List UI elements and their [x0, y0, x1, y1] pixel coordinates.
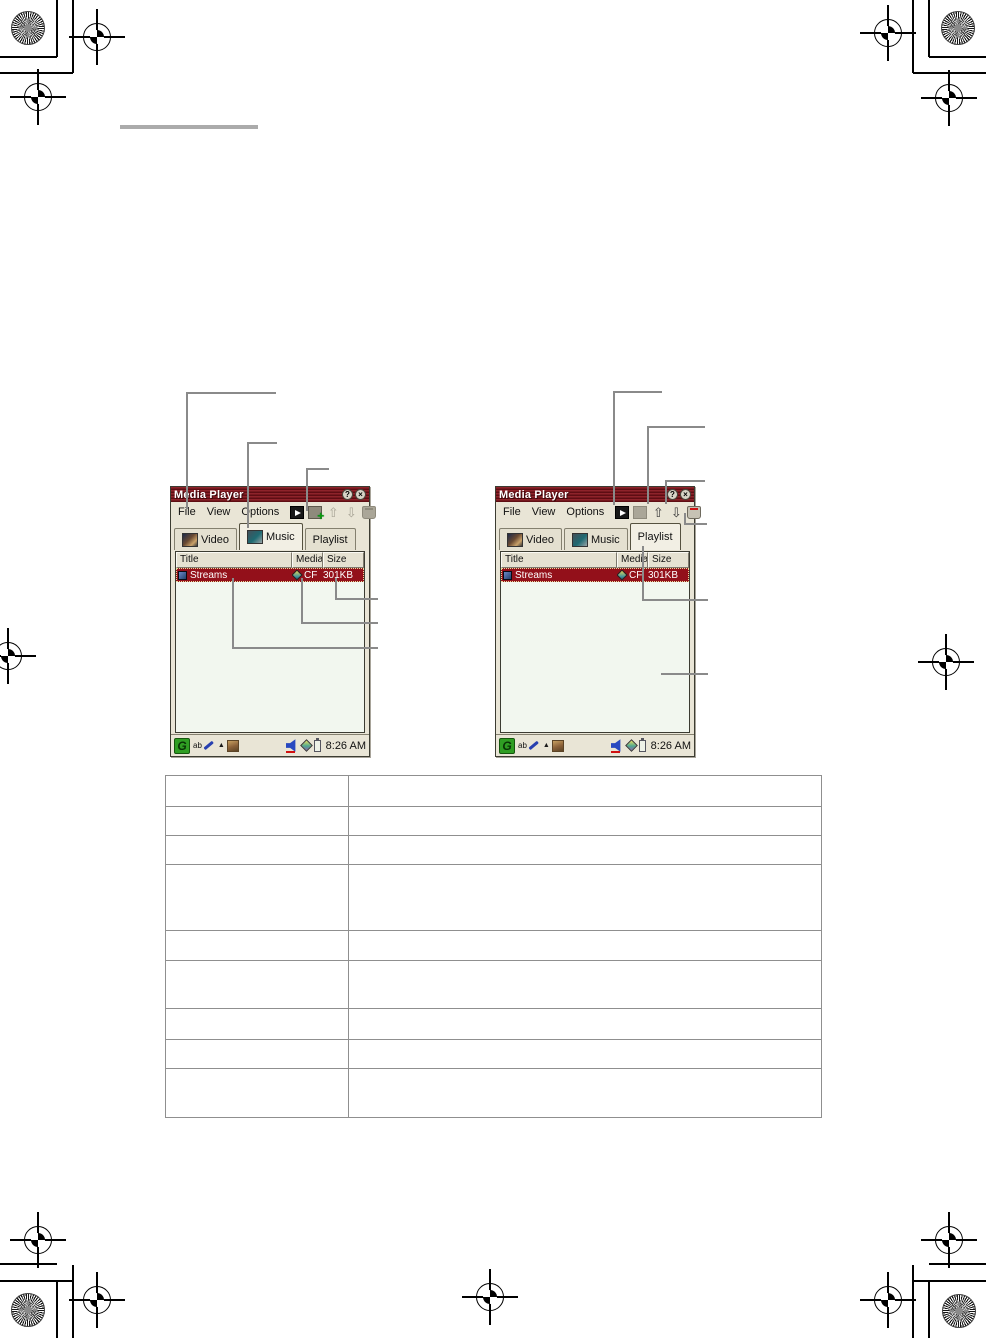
row-media: CF: [304, 570, 317, 581]
starburst-print-target: [941, 11, 975, 45]
callout-delete-icon-line-v: [684, 513, 686, 523]
tab-label: Video: [526, 534, 554, 546]
callout-size-column-line-v: [335, 578, 337, 598]
callout-file-menu-line-v: [186, 392, 188, 509]
callout-play-icon-line-h: [613, 391, 662, 393]
starburst-print-target: [11, 1293, 45, 1327]
crop-mark: [0, 1280, 73, 1282]
menu-file[interactable]: File: [503, 506, 521, 518]
add-to-playlist-icon: [633, 506, 647, 519]
row-title: Streams: [515, 570, 552, 581]
taskbar: G ab 8:26 AM: [496, 734, 694, 756]
registration-target: [921, 70, 977, 126]
crop-mark: [0, 1263, 57, 1265]
stream-file-icon: [178, 571, 187, 580]
starburst-print-target: [11, 11, 45, 45]
table-cell: [349, 776, 822, 807]
starburst-print-target: [942, 1294, 976, 1328]
crop-mark: [928, 0, 930, 57]
callout-move-down-icon-line-v: [665, 480, 667, 504]
stream-file-icon: [503, 571, 512, 580]
titlebar[interactable]: Media Player ? ×: [171, 487, 369, 502]
callout-move-up-icon-line-h: [647, 426, 705, 428]
taskbar: G ab 8:26 AM: [171, 734, 369, 756]
crop-mark: [913, 1280, 986, 1282]
move-down-icon: [344, 506, 358, 519]
tab-label: Music: [266, 531, 295, 543]
input-mode-label: ab: [193, 741, 202, 750]
callout-move-up-icon-line-v: [647, 426, 649, 504]
launcher-logo-icon[interactable]: G: [499, 738, 515, 754]
close-button[interactable]: ×: [680, 489, 691, 500]
toolbar: [615, 506, 701, 519]
table-cell: [349, 865, 822, 931]
menu-view[interactable]: View: [207, 506, 231, 518]
table-cell: [349, 1009, 822, 1040]
pen-input-icon[interactable]: [528, 741, 538, 750]
table-cell: [166, 931, 349, 961]
help-button[interactable]: ?: [342, 489, 353, 500]
list-header: Title Media Size: [501, 552, 689, 568]
crop-mark: [0, 72, 73, 74]
list-header: Title Media Size: [176, 552, 364, 568]
callout-play-icon-line-v: [613, 391, 615, 505]
crop-mark: [928, 1281, 930, 1338]
menu-bar: File View Options: [496, 502, 694, 522]
running-app-icon[interactable]: [227, 740, 239, 752]
table-cell: [349, 961, 822, 1009]
launcher-logo-icon[interactable]: G: [174, 738, 190, 754]
column-header-title[interactable]: Title: [176, 552, 292, 568]
registration-target: [0, 628, 36, 684]
callout-add-icon-line-v: [306, 468, 308, 511]
clock-label[interactable]: 8:26 AM: [326, 740, 366, 752]
battery-icon: [314, 740, 321, 752]
registration-target: [860, 1272, 916, 1328]
tab-bar: Video Music Playlist: [171, 522, 369, 550]
crop-mark: [72, 0, 74, 73]
menu-bar: File View Options: [171, 502, 369, 522]
status-diamond-icon[interactable]: [300, 739, 313, 752]
tab-playlist[interactable]: Playlist: [305, 528, 356, 550]
tab-label: Playlist: [313, 534, 348, 546]
table-cell: [349, 807, 822, 836]
crop-mark: [929, 56, 986, 58]
callout-title-column-line-v: [232, 578, 234, 647]
callout-media-column-line-h: [301, 622, 378, 624]
table-cell: [166, 1009, 349, 1040]
move-down-icon[interactable]: [669, 506, 683, 519]
menu-view[interactable]: View: [532, 506, 556, 518]
table-cell: [349, 1069, 822, 1118]
table-cell: [166, 776, 349, 807]
tab-music[interactable]: Music: [564, 528, 628, 550]
storage-card-icon: [617, 570, 628, 581]
status-diamond-icon[interactable]: [625, 739, 638, 752]
column-header-media[interactable]: Media: [292, 552, 323, 568]
window-title: Media Player: [174, 488, 340, 502]
row-size: 301KB: [323, 570, 364, 581]
registration-target: [69, 9, 125, 65]
row-media: CF: [629, 570, 642, 581]
registration-target: [69, 1272, 125, 1328]
table-cell: [166, 961, 349, 1009]
tab-playlist[interactable]: Playlist: [630, 523, 681, 550]
column-header-size[interactable]: Size: [323, 552, 364, 568]
table-cell: [166, 1040, 349, 1069]
crop-mark: [912, 1265, 914, 1338]
delete-icon[interactable]: [687, 506, 701, 519]
registration-target: [921, 1212, 977, 1268]
table-cell: [166, 836, 349, 865]
video-icon: [182, 533, 198, 547]
callout-add-icon-line-h: [306, 468, 329, 470]
tab-label: Music: [591, 534, 620, 546]
crop-mark: [0, 56, 57, 58]
callout-delete-icon-line-h: [684, 523, 707, 525]
crop-mark: [912, 0, 914, 73]
callout-music-tab-line-h: [247, 442, 277, 444]
media-list: Title Media Size Streams CF 301KB: [175, 551, 365, 733]
table-cell: [166, 865, 349, 931]
callout-move-down-icon-line-h: [665, 480, 705, 482]
input-panel-arrow-icon[interactable]: [218, 742, 225, 749]
clock-label[interactable]: 8:26 AM: [651, 740, 691, 752]
tab-bar: Video Music Playlist: [496, 522, 694, 550]
close-button[interactable]: ×: [355, 489, 366, 500]
menu-options[interactable]: Options: [566, 506, 604, 518]
media-list: Title Media Size Streams CF 301KB: [500, 551, 690, 733]
callout-playlist-tab-line-h: [642, 599, 708, 601]
table-cell: [349, 1040, 822, 1069]
table-cell: [349, 931, 822, 961]
table-cell: [349, 836, 822, 865]
registration-target: [10, 69, 66, 125]
callout-music-tab-line-v: [247, 442, 249, 528]
crop-mark: [72, 1265, 74, 1338]
input-panel-arrow-icon[interactable]: [543, 742, 550, 749]
callout-playlist-tab-line-v: [642, 546, 644, 599]
callout-title-column-line-h: [232, 647, 378, 649]
battery-icon: [639, 740, 646, 752]
crop-mark: [929, 1263, 986, 1265]
running-app-icon[interactable]: [552, 740, 564, 752]
registration-target: [918, 634, 974, 690]
callout-playlist-area-line-h: [661, 673, 708, 675]
help-button[interactable]: ?: [667, 489, 678, 500]
registration-target: [10, 1212, 66, 1268]
crop-mark: [56, 0, 58, 57]
tab-video[interactable]: Video: [499, 528, 562, 550]
callout-size-column-line-h: [335, 598, 378, 600]
video-icon: [507, 533, 523, 547]
volume-icon[interactable]: [286, 739, 299, 752]
feature-description-table: [165, 775, 822, 1118]
input-mode-label: ab: [518, 741, 527, 750]
table-cell: [166, 1069, 349, 1118]
tab-label: Playlist: [638, 531, 673, 543]
pen-input-icon[interactable]: [203, 741, 213, 750]
table-cell: [166, 807, 349, 836]
row-size: 301KB: [648, 570, 689, 581]
delete-icon: [362, 506, 376, 519]
row-title: Streams: [190, 570, 227, 581]
volume-icon[interactable]: [611, 739, 624, 752]
registration-target: [860, 5, 916, 61]
window-title: Media Player: [499, 488, 665, 502]
music-icon: [247, 530, 263, 544]
section-rule: [120, 125, 258, 129]
column-header-title[interactable]: Title: [501, 552, 617, 568]
tab-video[interactable]: Video: [174, 528, 237, 550]
play-icon[interactable]: [290, 506, 304, 519]
move-up-icon[interactable]: [651, 506, 665, 519]
music-icon: [572, 533, 588, 547]
toolbar: [290, 506, 376, 519]
media-player-window-playlist: Media Player ? × File View Options Video…: [495, 486, 695, 757]
crop-mark: [56, 1281, 58, 1338]
add-to-playlist-icon[interactable]: [308, 506, 322, 519]
callout-media-column-line-v: [301, 578, 303, 622]
tab-label: Video: [201, 534, 229, 546]
move-up-icon: [326, 506, 340, 519]
play-icon[interactable]: [615, 506, 629, 519]
crop-mark: [913, 72, 986, 74]
list-row-streams[interactable]: Streams CF 301KB: [501, 568, 689, 582]
callout-file-menu-line-h: [186, 392, 276, 394]
column-header-size[interactable]: Size: [648, 552, 689, 568]
registration-target: [462, 1269, 518, 1325]
